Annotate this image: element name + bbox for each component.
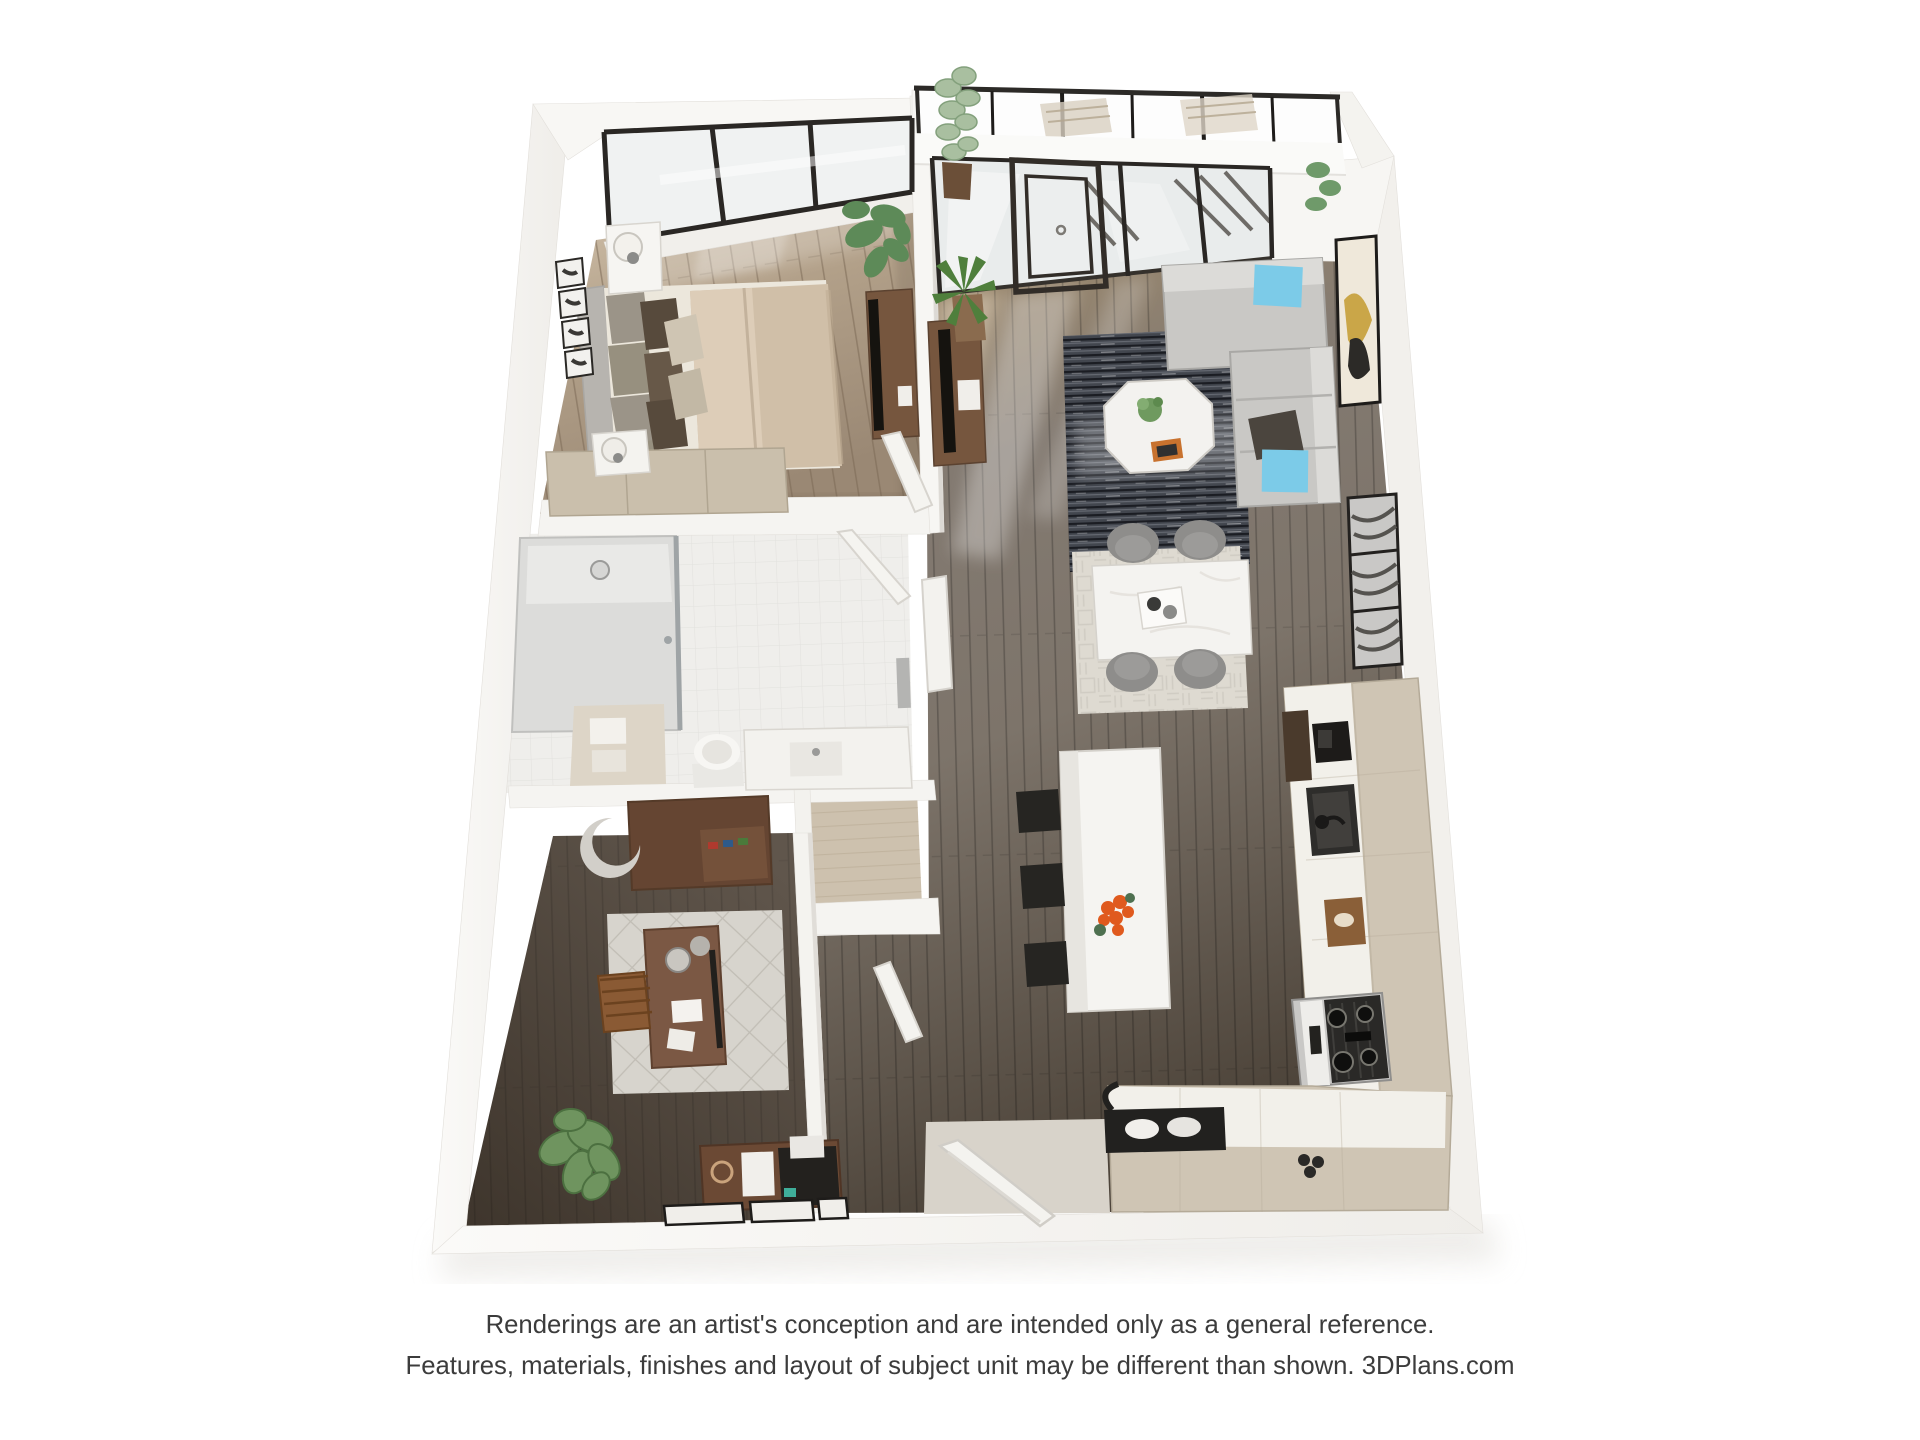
svg-text:Features, materials, finishes: Features, materials, finishes and layout… [406,1352,1515,1380]
svg-text:Renderings are an artist's con: Renderings are an artist's conception an… [486,1311,1435,1339]
